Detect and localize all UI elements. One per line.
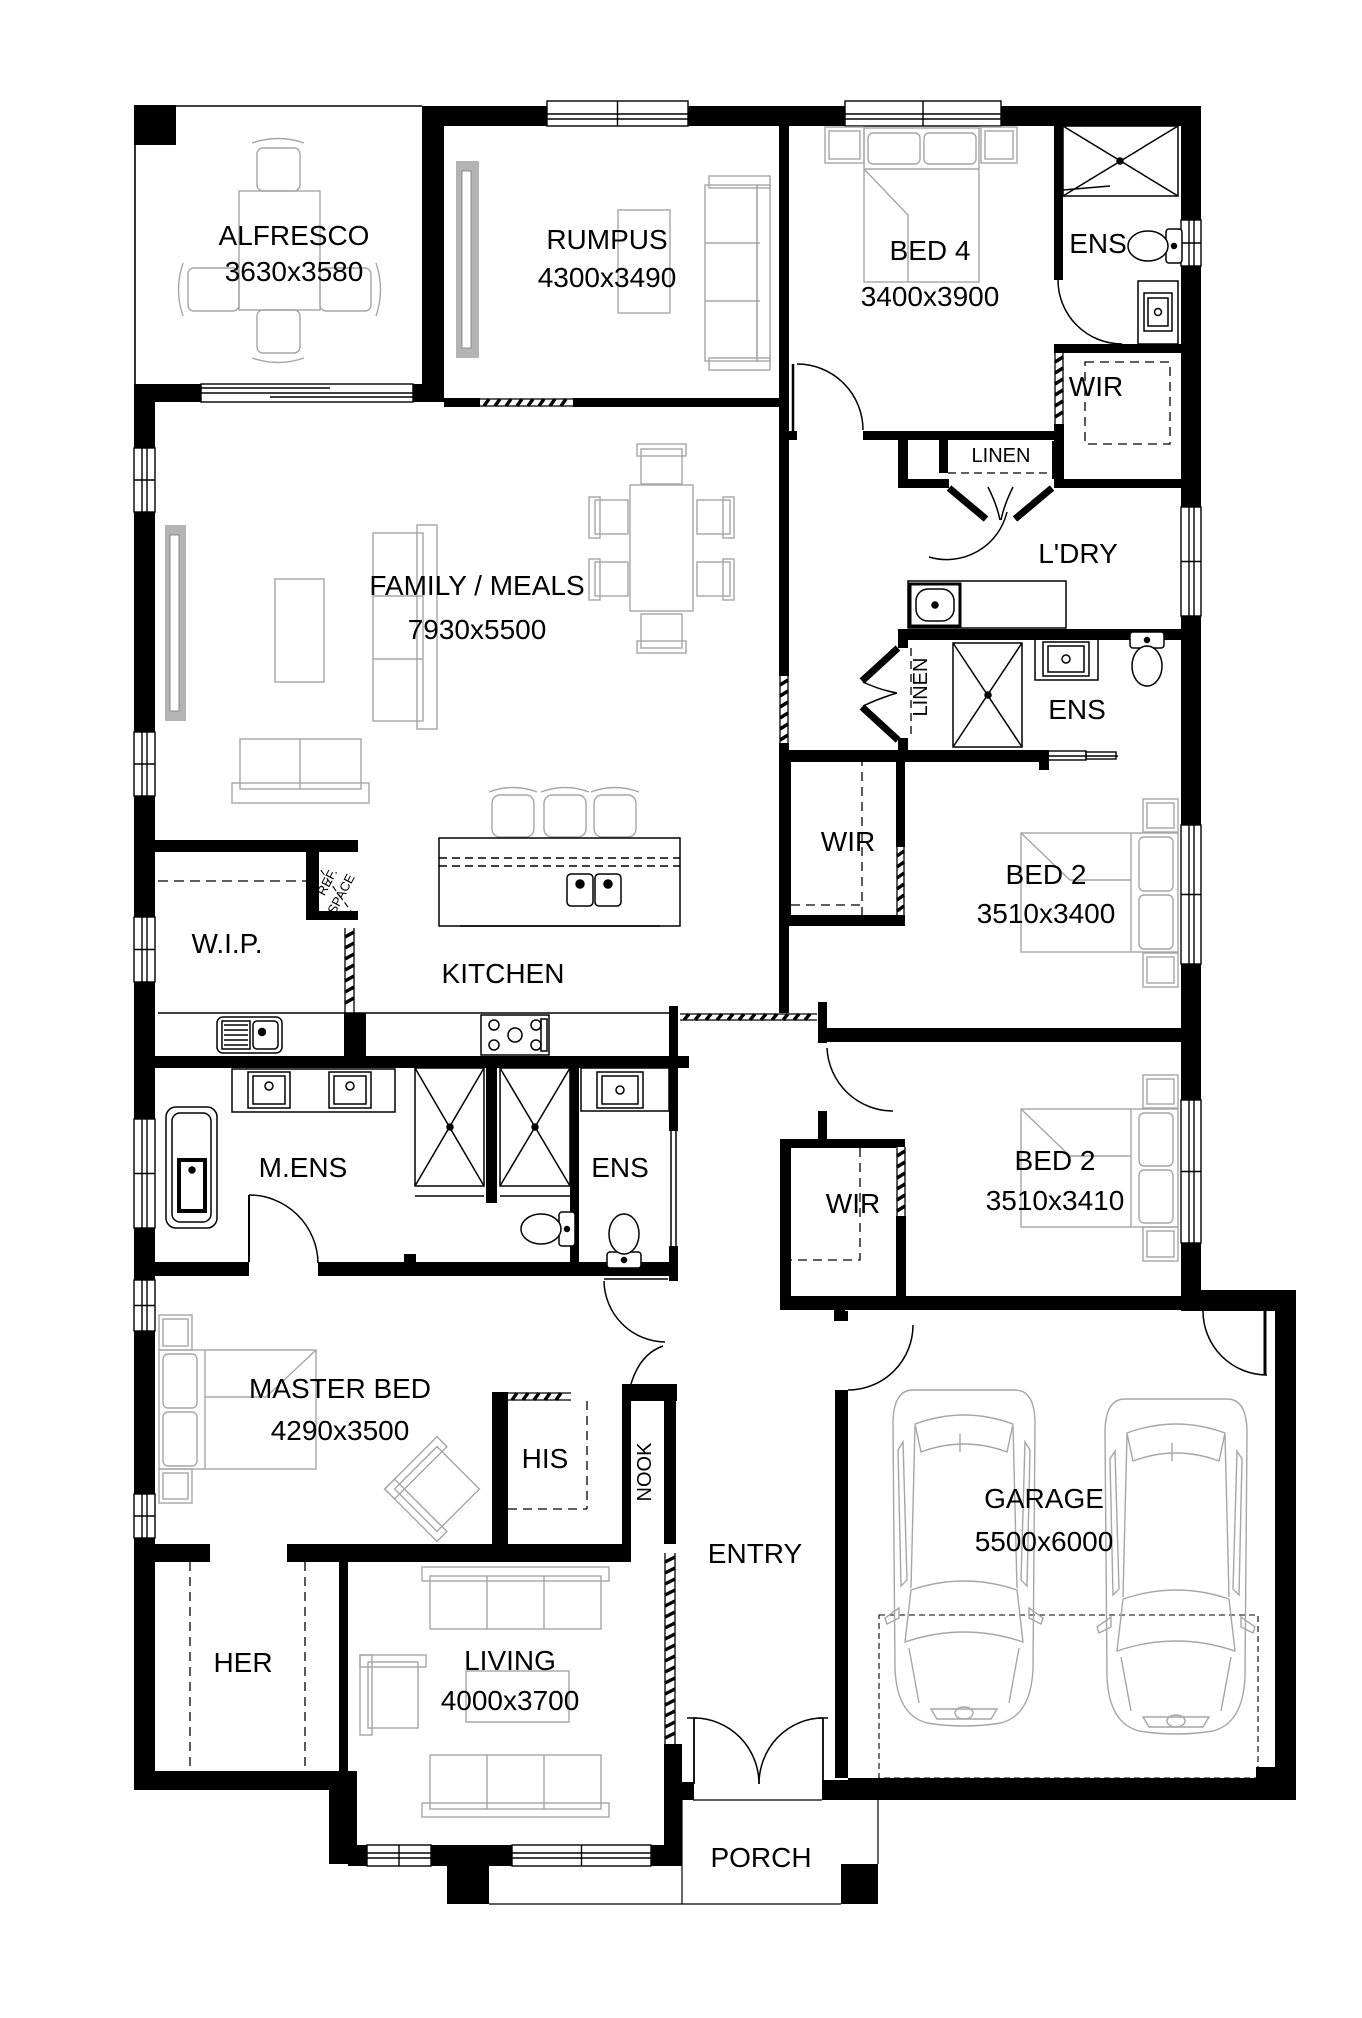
svg-text:3630x3580: 3630x3580: [225, 256, 364, 287]
svg-text:ENS: ENS: [1069, 228, 1127, 259]
svg-text:3510x3410: 3510x3410: [986, 1185, 1125, 1216]
svg-text:W.I.P.: W.I.P.: [191, 928, 262, 959]
svg-text:PORCH: PORCH: [710, 1842, 811, 1873]
svg-text:7930x5500: 7930x5500: [408, 614, 547, 645]
svg-text:NOOK: NOOK: [634, 1442, 656, 1502]
svg-text:HER: HER: [213, 1647, 272, 1678]
svg-text:4300x3490: 4300x3490: [538, 262, 677, 293]
svg-text:HIS: HIS: [522, 1443, 569, 1474]
svg-text:LINEN: LINEN: [910, 658, 932, 717]
svg-text:WIR: WIR: [821, 826, 875, 857]
svg-text:BED 2: BED 2: [1006, 859, 1087, 890]
svg-text:M.ENS: M.ENS: [259, 1152, 348, 1183]
svg-text:3510x3400: 3510x3400: [977, 898, 1116, 929]
svg-text:ALFRESCO: ALFRESCO: [219, 220, 370, 251]
svg-text:4000x3700: 4000x3700: [441, 1685, 580, 1716]
svg-text:LINEN: LINEN: [972, 445, 1031, 467]
svg-text:FAMILY / MEALS: FAMILY / MEALS: [369, 570, 584, 601]
svg-text:4290x3500: 4290x3500: [271, 1415, 410, 1446]
svg-text:ENS: ENS: [1048, 694, 1106, 725]
svg-text:ENTRY: ENTRY: [708, 1538, 803, 1569]
svg-text:LIVING: LIVING: [464, 1645, 556, 1676]
svg-text:5500x6000: 5500x6000: [975, 1526, 1114, 1557]
svg-text:ENS: ENS: [591, 1152, 649, 1183]
svg-text:GARAGE: GARAGE: [984, 1483, 1104, 1514]
svg-text:BED 4: BED 4: [890, 235, 971, 266]
svg-text:WIR: WIR: [826, 1188, 880, 1219]
svg-text:WIR: WIR: [1069, 371, 1123, 402]
svg-text:RUMPUS: RUMPUS: [546, 224, 667, 255]
svg-text:MASTER BED: MASTER BED: [249, 1373, 431, 1404]
svg-text:BED 2: BED 2: [1015, 1145, 1096, 1176]
svg-text:KITCHEN: KITCHEN: [442, 958, 565, 989]
svg-text:3400x3900: 3400x3900: [861, 281, 1000, 312]
svg-text:L'DRY: L'DRY: [1038, 538, 1118, 569]
